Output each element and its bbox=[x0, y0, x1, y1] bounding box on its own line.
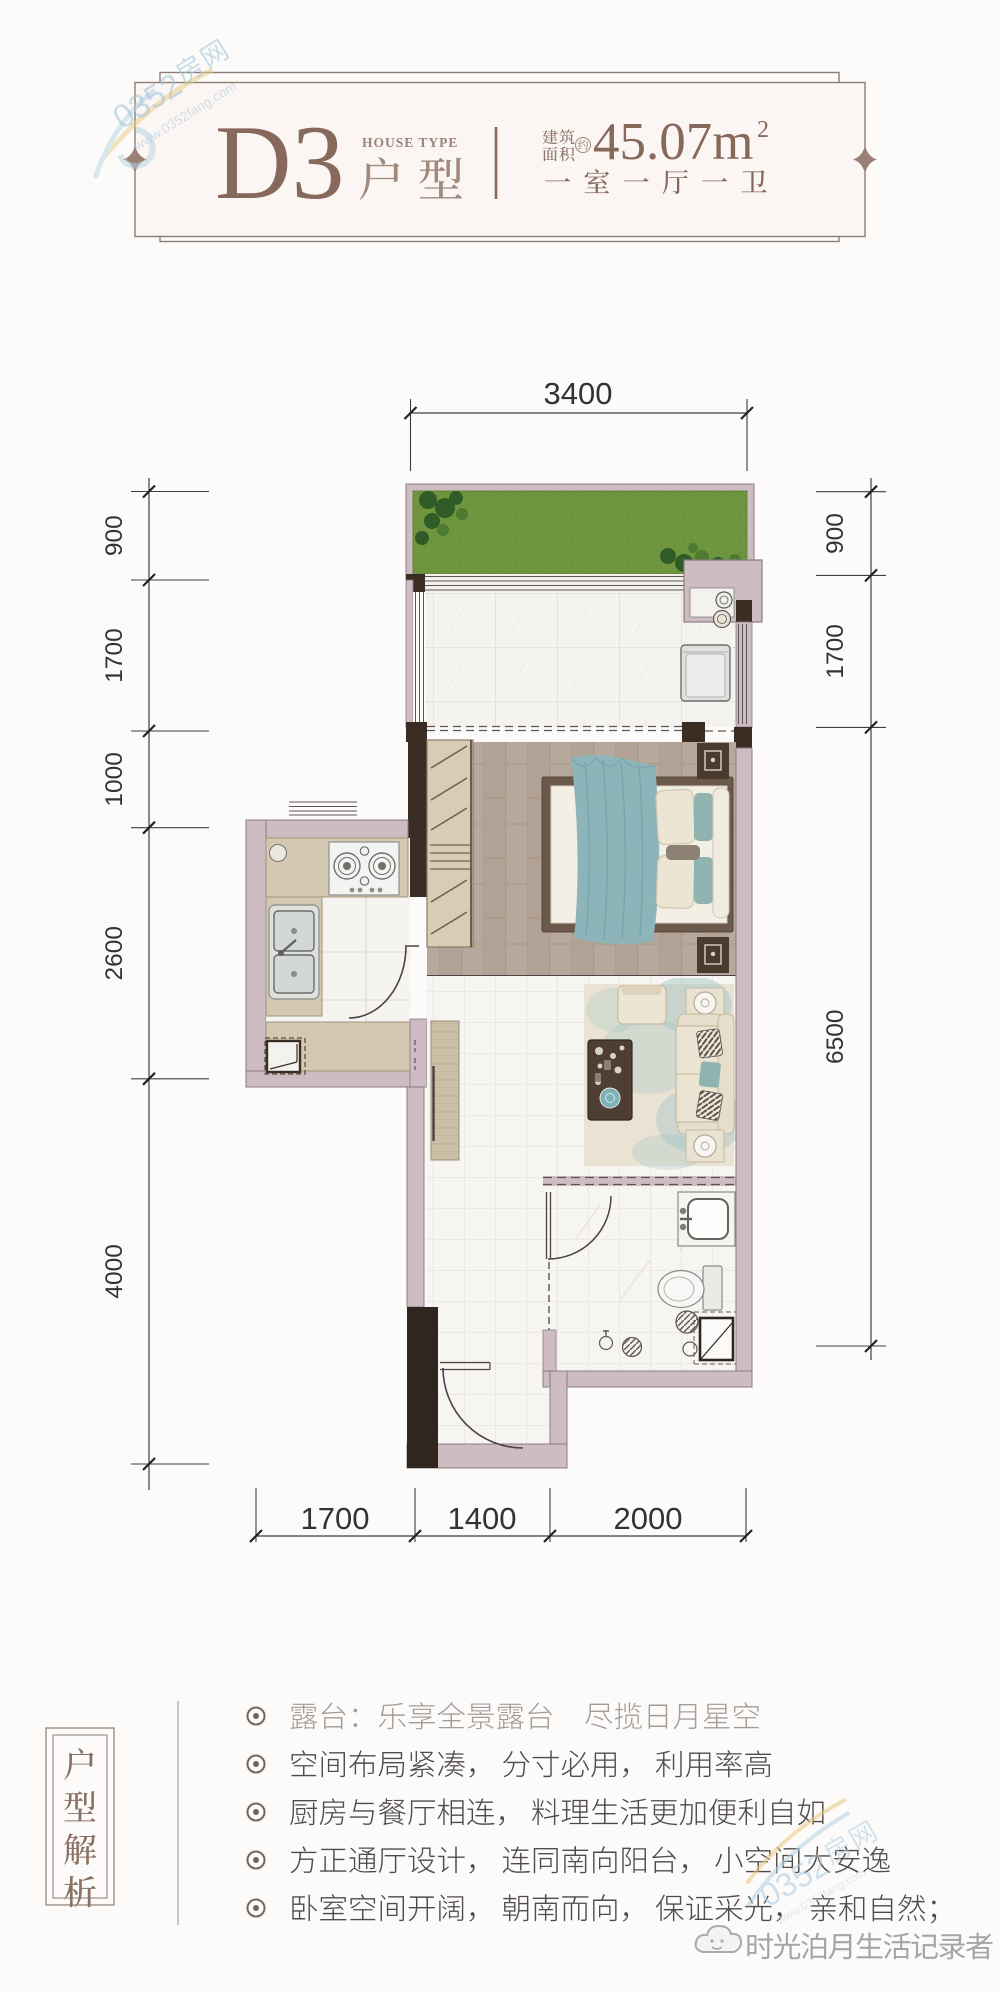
svg-text:900: 900 bbox=[822, 513, 849, 554]
svg-text:2: 2 bbox=[757, 117, 769, 143]
svg-text:HOUSE TYPE: HOUSE TYPE bbox=[362, 135, 458, 150]
svg-text:3400: 3400 bbox=[544, 376, 613, 411]
svg-text:1700: 1700 bbox=[101, 628, 128, 683]
svg-text:6500: 6500 bbox=[822, 1009, 849, 1064]
svg-text:2600: 2600 bbox=[101, 926, 128, 981]
svg-text:45.07m: 45.07m bbox=[593, 113, 753, 171]
svg-text:D3: D3 bbox=[215, 104, 345, 221]
svg-text:4000: 4000 bbox=[101, 1244, 128, 1299]
svg-text:1700: 1700 bbox=[301, 1501, 370, 1536]
svg-text:2000: 2000 bbox=[614, 1501, 683, 1536]
svg-text:900: 900 bbox=[101, 515, 128, 556]
svg-text:1400: 1400 bbox=[448, 1501, 517, 1536]
svg-text:1000: 1000 bbox=[101, 752, 128, 807]
svg-text:1700: 1700 bbox=[822, 624, 849, 679]
